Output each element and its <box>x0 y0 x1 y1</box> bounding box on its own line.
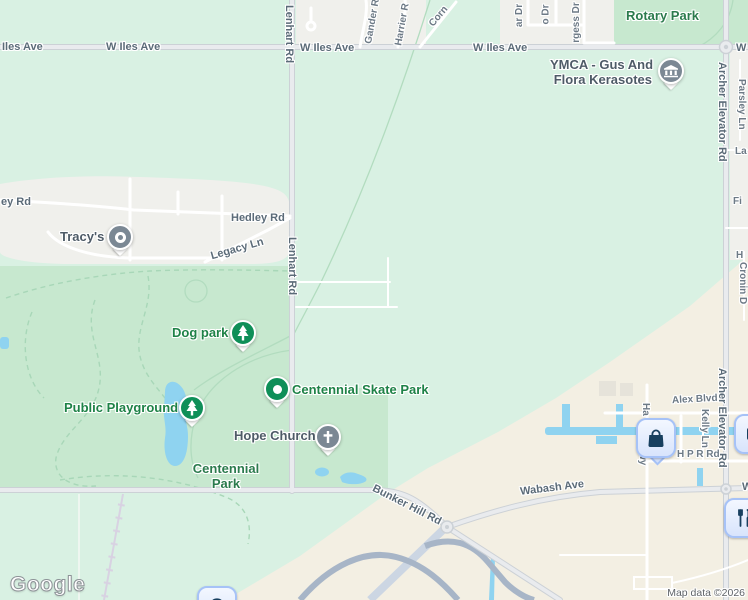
road-label-w-iles-ave: W Iles Ave <box>473 42 527 54</box>
circle-icon <box>197 586 237 600</box>
road-label-w-iles-ave: W Iles Ave <box>300 42 354 54</box>
road-label-iles-ave-partial: Iles Ave <box>2 41 43 53</box>
tree-icon <box>230 320 256 346</box>
road-label-ha-partial: Ha <box>640 403 651 416</box>
centennial-park-label[interactable]: Centennial Park <box>188 461 264 491</box>
map-attribution: Map data ©2026 <box>667 587 745 599</box>
dog-park-label[interactable]: Dog park <box>172 325 228 340</box>
road-label-wabash-partial: W <box>742 481 748 493</box>
road-label-ar-dr-partial: ar Dr <box>514 4 525 27</box>
road-label-w-iles-ave-partial: W <box>736 42 746 54</box>
road-label-hedley-rd: Hedley Rd <box>231 212 285 224</box>
map-viewport[interactable]: Iles Ave W Iles Ave W Iles Ave W Iles Av… <box>0 0 748 600</box>
tree-icon <box>179 395 205 421</box>
tracys-label[interactable]: Tracy's <box>60 229 104 244</box>
road-label-hpr-rd: H P R Rd <box>677 449 720 460</box>
hope-church-label[interactable]: Hope Church <box>234 428 316 443</box>
railroad <box>101 494 124 600</box>
partial-place-marker[interactable] <box>734 414 748 454</box>
road-label-fi-partial: Fi <box>733 196 742 207</box>
ymca-label-line2: Flora Kerasotes <box>550 72 652 87</box>
road-label-parsley-ln: Parsley Ln <box>736 79 747 130</box>
road-label-kelly-ln: Kelly Ln <box>699 409 710 448</box>
road-label-lenhart-rd: Lenhart Rd <box>286 237 298 295</box>
terrain-areas <box>0 0 748 600</box>
restaurant-marker[interactable] <box>724 498 748 538</box>
museum-building-icon <box>658 58 684 84</box>
road-label-cronin-partial: Cronin D <box>737 262 748 304</box>
centennial-park-label-line2: Park <box>188 476 264 491</box>
restaurant-icon <box>724 498 748 538</box>
skate-park-label[interactable]: Centennial Skate Park <box>292 382 429 397</box>
cross-icon <box>315 424 341 450</box>
road-label-rgess-dr-partial: rgess Dr <box>571 2 582 43</box>
google-logo[interactable]: Google <box>10 573 85 597</box>
buildings <box>599 381 633 396</box>
place-icon <box>734 414 748 454</box>
road-label-archer-elevator-rd: Archer Elevator Rd <box>716 62 728 162</box>
road-label-la-partial: La <box>735 146 747 157</box>
playground-pond <box>164 382 188 466</box>
road-label-w-iles-ave: W Iles Ave <box>106 41 160 53</box>
centennial-park-label-line1: Centennial <box>188 461 264 476</box>
ymca-label[interactable]: YMCA - Gus And Flora Kerasotes <box>550 57 652 87</box>
park-dot-icon <box>264 376 290 402</box>
road-label-h-partial: H <box>736 250 743 261</box>
map-canvas <box>0 0 748 600</box>
place-dot-icon <box>107 224 133 250</box>
centennial-park-area <box>0 266 292 492</box>
partial-bottom-marker[interactable] <box>197 586 237 600</box>
road-label-lenhart-rd: Lenhart Rd <box>283 5 295 63</box>
road-label-hedley-rd-partial: ey Rd <box>1 196 31 208</box>
public-playground-label[interactable]: Public Playground <box>64 400 178 415</box>
ymca-label-line1: YMCA - Gus And <box>550 57 652 72</box>
shopping-marker[interactable] <box>636 418 676 458</box>
shopping-bag-icon <box>636 418 676 458</box>
rotary-park-label[interactable]: Rotary Park <box>626 8 699 23</box>
road-label-o-dr-partial: o Dr <box>541 5 552 25</box>
